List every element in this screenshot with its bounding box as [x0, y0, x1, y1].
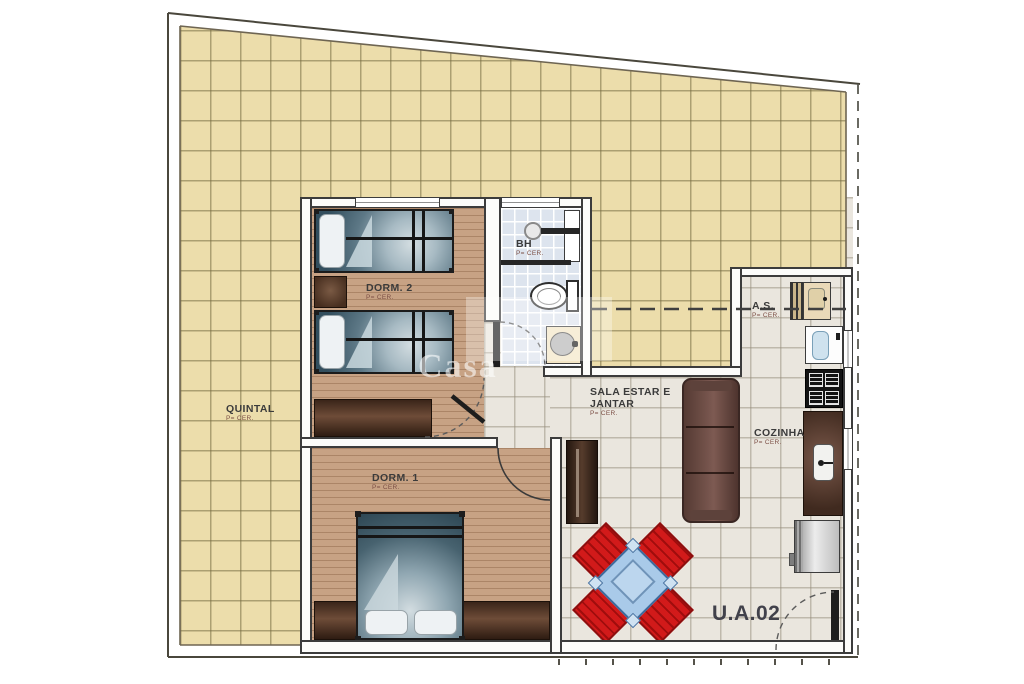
floor-plan: QUINTAL P= CER. DORM. 2 P= CER. BH P= CE… — [0, 0, 1024, 684]
label-bathroom: BH P= CER. — [516, 238, 544, 259]
room-name: QUINTAL — [226, 403, 275, 415]
room-name: DORM. 1 — [372, 472, 419, 484]
label-sala: SALA ESTAR E JANTAR P= CER. — [590, 386, 671, 419]
label-dorm1: DORM. 1 P= CER. — [372, 472, 419, 493]
door-arc-entry — [776, 592, 834, 650]
label-cozinha: COZINHA P= CER. — [754, 427, 805, 448]
room-name: BH — [516, 238, 544, 250]
label-as: A.S. P= CER. — [752, 300, 780, 321]
room-name: A.S. — [752, 300, 780, 312]
floor-code: P= CER. — [752, 312, 780, 320]
floor-code: P= CER. — [226, 415, 275, 423]
watermark-text: Casa — [418, 348, 498, 386]
floor-code: P= CER. — [590, 410, 671, 418]
room-name: DORM. 2 — [366, 282, 413, 294]
unit-label: U.A.02 — [712, 602, 780, 626]
room-name: JANTAR — [590, 398, 671, 410]
door-arc-dorm2 — [425, 378, 484, 437]
floor-code: P= CER. — [754, 439, 805, 447]
floor-code: P= CER. — [372, 484, 419, 492]
property-line-top — [168, 13, 860, 84]
label-dorm2: DORM. 2 P= CER. — [366, 282, 413, 303]
door-arc-dorm1 — [498, 448, 550, 500]
floor-code: P= CER. — [516, 250, 544, 258]
room-name: COZINHA — [754, 427, 805, 439]
label-quintal: QUINTAL P= CER. — [226, 403, 275, 424]
floor-code: P= CER. — [366, 294, 413, 302]
room-name: SALA ESTAR E — [590, 386, 671, 398]
